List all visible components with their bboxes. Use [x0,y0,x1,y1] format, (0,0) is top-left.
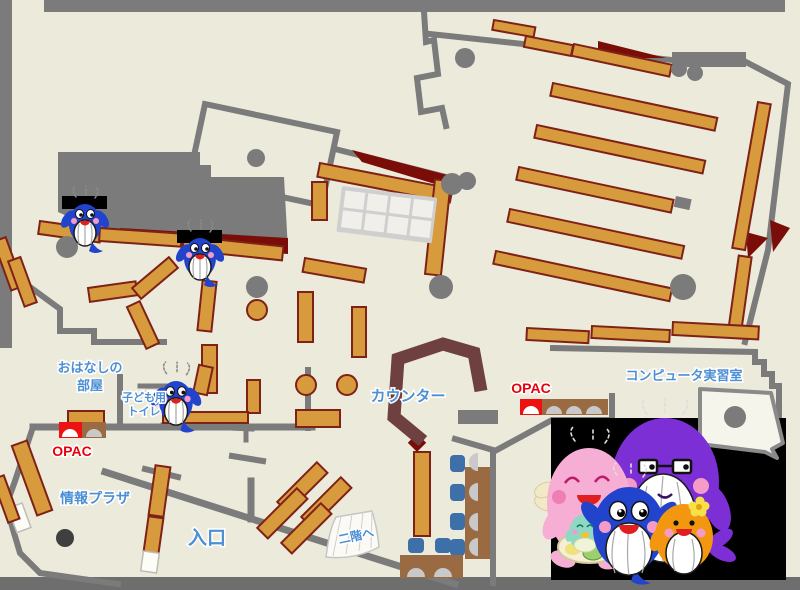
cheek [697,529,706,538]
chair [435,538,451,553]
pillar [247,149,265,167]
opac-station-left [59,422,106,438]
chair [450,513,465,530]
shelf-end-cap [141,551,160,573]
label-storytelling-room-2: 部屋 [77,378,103,393]
bookshelf [312,182,327,220]
table [387,216,409,235]
table [389,196,411,215]
eye-glint [619,510,622,513]
eye [689,520,694,525]
eye [673,520,678,525]
label-kids-toilet-2: トイレ [128,405,161,418]
label-kids-toilet: 子ども用 [122,391,166,404]
label-storytelling-room: おはなしの [57,360,122,375]
pillar [429,275,453,299]
round-table [247,300,267,320]
table [409,219,431,238]
pillar [56,529,74,547]
eye-glint [641,510,644,513]
label-info-plaza: 情報プラザ [60,490,130,506]
frame-left [0,0,12,348]
opac-station-right [520,399,608,415]
cheek [665,529,674,538]
chair [450,539,465,556]
label-entrance: 入口 [188,527,226,549]
chair [450,455,465,472]
pillar [246,276,268,298]
round-table [296,375,316,395]
bookshelf [247,380,260,413]
bookshelf [298,292,313,342]
eye [683,464,689,470]
frame-top [44,0,785,12]
bib [574,538,596,552]
beak [581,532,589,538]
pillar [458,172,476,190]
bookshelf [526,328,589,343]
cheek [573,530,578,535]
bookshelf [352,307,366,357]
bookshelf [296,410,340,427]
pillar [455,48,475,68]
eye [649,464,655,470]
round-table [337,375,357,395]
table [341,210,363,229]
pillar [671,61,687,77]
belly [666,532,702,574]
chair [450,484,465,501]
floor-map-canvas: おはなしの 部屋 子ども用 トイレ OPAC 情報プラザ 入口 カウンター OP… [0,0,800,590]
cheek [599,521,611,533]
pillar [670,274,696,300]
label-computer-room: コンピュータ実習室 [625,368,742,383]
pillar [687,65,703,81]
label-counter: カウンター [370,388,445,405]
cheek [552,490,566,504]
table [366,193,388,212]
bookshelf [414,452,430,536]
table [364,213,386,232]
label-opac-right: OPAC [511,380,550,396]
cheek [693,478,709,494]
table [412,199,434,218]
chair [408,538,424,553]
label-opac-left: OPAC [52,443,91,459]
pillar [724,406,746,428]
table [343,190,365,209]
library-floor-map: おはなしの 部屋 子ども用 トイレ OPAC 情報プラザ 入口 カウンター OP… [0,0,800,590]
counter-back-block [458,410,498,424]
